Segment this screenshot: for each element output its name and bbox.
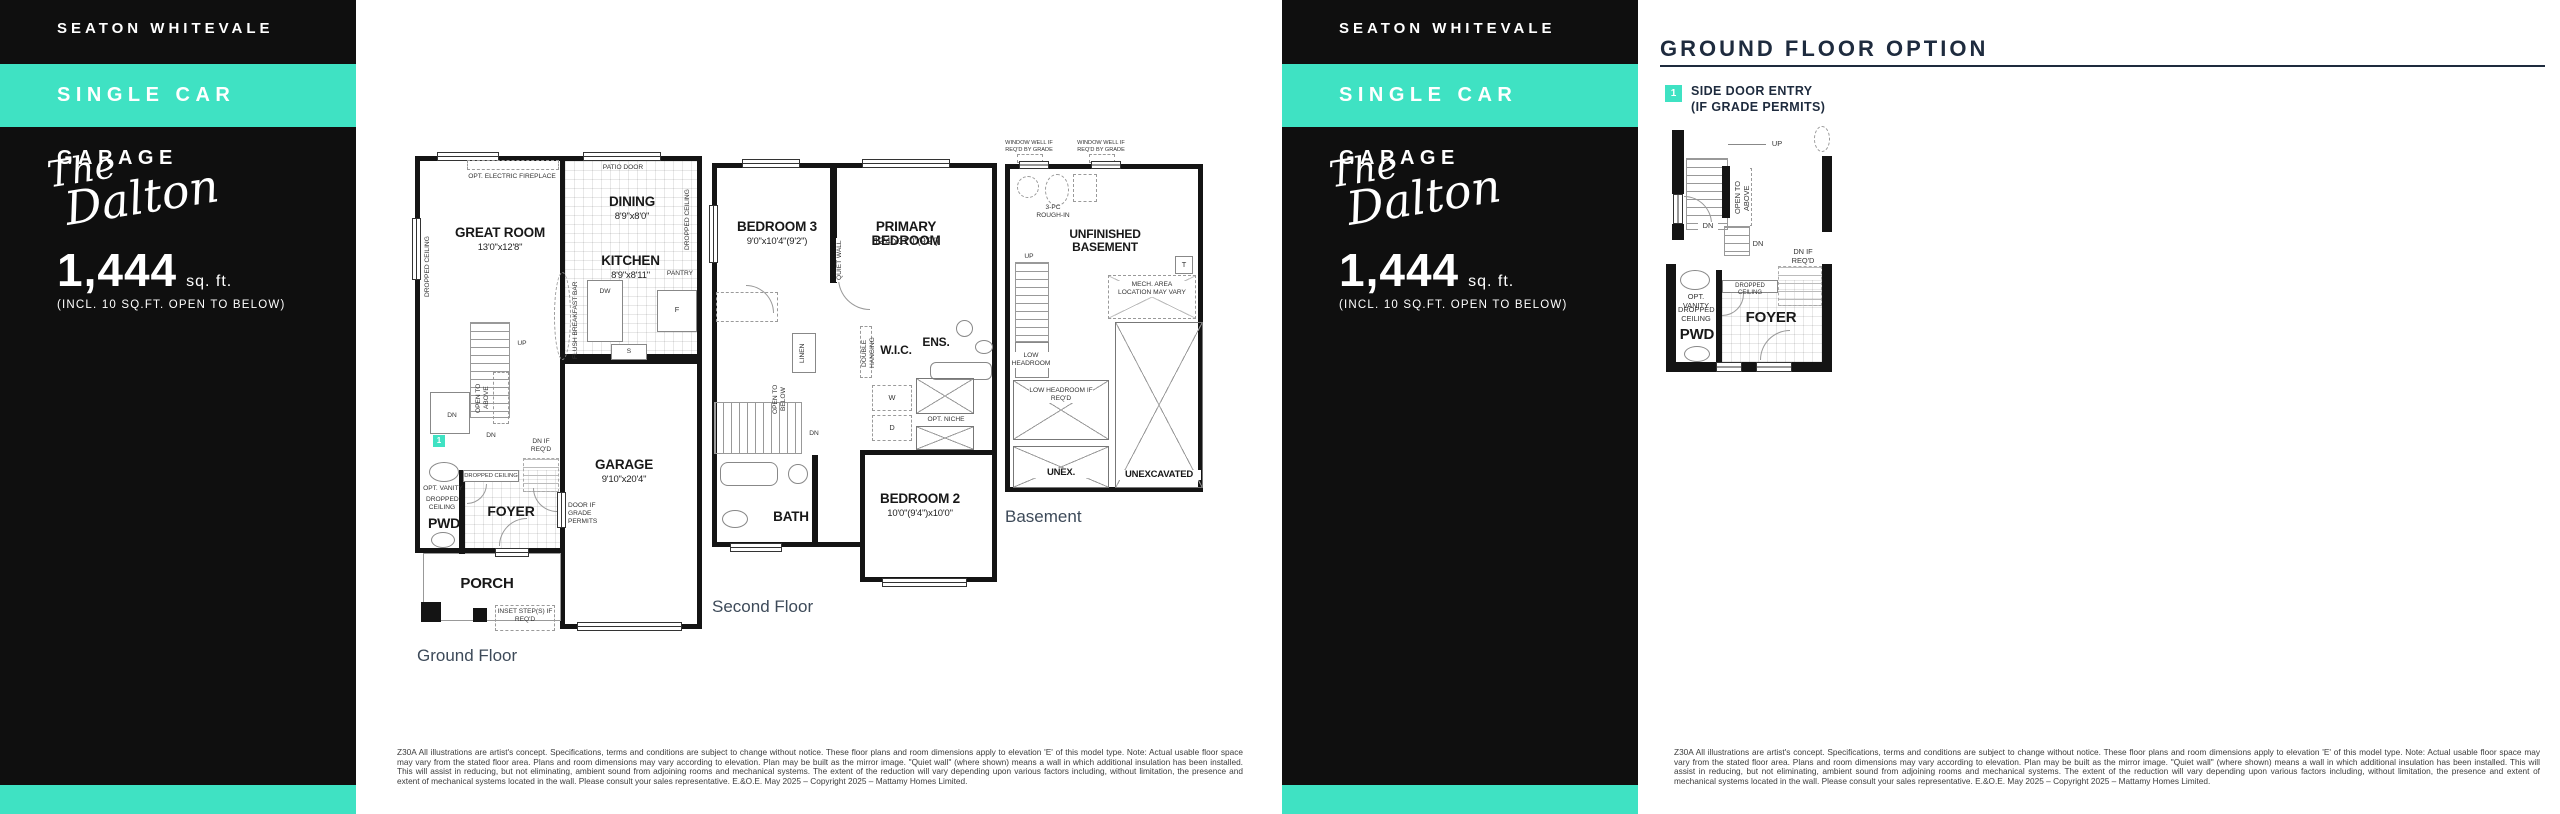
flush-breakfast-bar-label: FLUSH BREAKFAST BAR — [572, 280, 581, 360]
dn-label: DN — [1748, 240, 1768, 249]
wardrobe — [916, 378, 974, 414]
dryer-label: D — [872, 424, 912, 433]
tank-label: T — [1175, 261, 1193, 270]
wall-segment — [812, 455, 818, 547]
right-sidebar: SEATON WHITEVALE SINGLE CAR GARAGE The D… — [1282, 0, 1638, 814]
option-floor-plan: UP OPEN TO ABOVE DN DN DN IF REQ'D OPT. … — [1658, 130, 1840, 378]
door-if-grade-label: DOOR IF GRADE PERMITS — [568, 502, 602, 526]
room-label-ensuite: ENS. — [918, 336, 954, 349]
primary-bedroom-dim: 12'4"x11'0"(9'2") — [842, 236, 970, 247]
bedroom2-dim: 10'0"(9'4")x10'0" — [864, 508, 976, 519]
window — [882, 578, 967, 587]
great-room-dim: 13'0"x12'8" — [440, 242, 560, 253]
room-label-foyer: FOYER — [1742, 310, 1800, 326]
room-label-great-room: GREAT ROOM — [440, 226, 560, 240]
bedroom3-dim: 9'0"x10'4"(9'2") — [727, 236, 827, 247]
window — [730, 543, 782, 552]
stairs-up — [1015, 262, 1049, 342]
title-rule — [1660, 65, 2545, 67]
up-label: UP — [511, 340, 533, 348]
room-label-bedroom2: BEDROOM 2 — [870, 492, 970, 506]
side-door-opening — [1673, 194, 1683, 224]
square-footage: 1,444 sq. ft. — [1339, 243, 1514, 297]
window — [709, 205, 718, 263]
basement-plan: WINDOW WELL IF REQ'D BY GRADE WINDOW WEL… — [1005, 140, 1215, 535]
square-footage: 1,444 sq. ft. — [57, 243, 232, 297]
opt-niche-label: OPT. NICHE — [924, 416, 968, 424]
window — [412, 218, 421, 280]
wall-segment — [1822, 156, 1832, 232]
vanity-sink — [1680, 270, 1710, 290]
garage-type-banner: SINGLE CAR GARAGE — [0, 64, 356, 127]
sqft-value: 1,444 — [57, 243, 177, 297]
bedroom2-closet — [916, 426, 974, 450]
window — [742, 159, 800, 168]
toilet — [431, 532, 455, 548]
room-label-bath: BATH — [768, 510, 814, 524]
ensuite-sink — [956, 320, 973, 337]
bath-toilet — [722, 510, 748, 528]
window — [1091, 161, 1121, 169]
fireplace-dashed-box — [467, 160, 559, 170]
stair-wall — [1722, 166, 1730, 218]
main-plan-sheet: SEATON WHITEVALE SINGLE CAR GARAGE The D… — [0, 0, 1282, 814]
room-label-dining: DINING — [587, 195, 677, 209]
mech-area-label: MECH. AREA LOCATION MAY VARY — [1118, 281, 1186, 297]
optional-stairs — [523, 458, 559, 492]
inset-steps-label: INSET STEP(S) IF REQ'D — [497, 608, 553, 624]
legend-marker-1: 1 — [1665, 85, 1682, 102]
sqft-unit: sq. ft. — [186, 273, 232, 291]
window — [862, 159, 950, 168]
unexcavated-label: UNEXCAVATED — [1117, 470, 1201, 480]
garage-dim: 9'10"x20'4" — [590, 474, 658, 485]
disclaimer-text: Z30A All illustrations are artist's conc… — [397, 748, 1243, 787]
ground-floor-caption: Ground Floor — [417, 646, 517, 666]
dn-label: DN — [1698, 222, 1718, 231]
dropped-ceiling-label: DROPPED CEILING — [464, 473, 518, 480]
option-sheet: SEATON WHITEVALE SINGLE CAR GARAGE The D… — [1282, 0, 2560, 814]
patio-door-window — [583, 152, 661, 161]
sink-label: S — [619, 348, 639, 356]
wall-segment — [1822, 264, 1832, 372]
sqft-note: (INCL. 10 SQ.FT. OPEN TO BELOW) — [57, 299, 285, 311]
room-label-pwd: PWD — [1674, 327, 1720, 343]
up-arrow-line — [1728, 144, 1766, 145]
linen-label: LINEN — [799, 338, 808, 368]
up-label: UP — [1021, 253, 1037, 261]
dn-label: DN — [481, 432, 501, 440]
unexcavated-area — [1115, 322, 1203, 488]
open-to-above-zone — [493, 372, 509, 424]
open-to-below-label: OPEN TO BELOW — [772, 378, 790, 420]
window-well-label: WINDOW WELL IF REQ'D BY GRADE — [1005, 140, 1053, 153]
vanity-sink — [429, 462, 459, 482]
disclaimer-text: Z30A All illustrations are artist's conc… — [1674, 748, 2540, 787]
dn-label: DN — [804, 430, 824, 438]
rough-in-label: 3-PC ROUGH-IN — [1033, 204, 1073, 220]
opt-fireplace-label: OPT. ELECTRIC FIREPLACE — [447, 173, 577, 181]
front-door-opening — [1756, 362, 1792, 372]
sqft-unit: sq. ft. — [1468, 273, 1514, 291]
window — [1716, 362, 1742, 372]
legend-if-grade-permits: (IF GRADE PERMITS) — [1691, 100, 1825, 114]
up-label: UP — [1766, 140, 1788, 149]
rough-in-fixture — [1073, 174, 1097, 202]
dropped-ceiling-label: DROPPED CEILING — [1723, 283, 1777, 297]
window — [1019, 161, 1049, 169]
grade-door-opening — [557, 492, 566, 528]
porch-post — [421, 602, 441, 622]
opt-vanity-label: OPT. VANITY — [423, 485, 463, 493]
breakfast-bar-curve — [554, 272, 571, 360]
toilet — [1684, 346, 1710, 362]
left-sidebar: SEATON WHITEVALE SINGLE CAR GARAGE The D… — [0, 0, 356, 814]
optional-stairs — [1778, 266, 1822, 306]
breakfast-bar-curve — [1814, 126, 1830, 152]
option-marker-1: 1 — [433, 435, 445, 447]
fridge-label: F — [670, 306, 684, 315]
bath-sink — [788, 464, 808, 484]
stairs-lower — [1724, 226, 1750, 256]
pantry-label: PANTRY — [661, 270, 699, 278]
low-headroom-label: LOW HEADROOM — [1011, 352, 1051, 368]
sqft-note: (INCL. 10 SQ.FT. OPEN TO BELOW) — [1339, 299, 1567, 311]
window-well-label: WINDOW WELL IF REQ'D BY GRADE — [1077, 140, 1125, 153]
room-label-foyer: FOYER — [485, 504, 537, 519]
dishwasher-label: DW — [593, 288, 617, 296]
sidebar-accent-strip — [0, 785, 356, 814]
dining-dim: 8'9"x8'0" — [587, 211, 677, 222]
room-label-kitchen: KITCHEN — [583, 254, 678, 268]
wall-segment — [1672, 130, 1684, 194]
patio-door-label: PATIO DOOR — [595, 164, 651, 172]
room-label-garage: GARAGE — [590, 458, 658, 472]
garage-type-banner: SINGLE CAR GARAGE — [1282, 64, 1638, 127]
rough-in-fixture — [1017, 176, 1039, 198]
dropped-ceiling-label: DROPPED CEILING — [426, 496, 458, 512]
ground-floor-plan: OPT. ELECTRIC FIREPLACE PATIO DOOR GREAT… — [415, 140, 707, 670]
second-floor-plan: QUIET WALL BEDROOM 3 9'0"x10'4"(9'2") PR… — [712, 150, 1000, 625]
wall-outline — [560, 359, 702, 629]
basement-caption: Basement — [1005, 507, 1082, 527]
washer-label: W — [872, 394, 912, 403]
bath-tub — [720, 462, 778, 486]
option-title: GROUND FLOOR OPTION — [1660, 36, 1988, 62]
low-headroom-if-label: LOW HEADROOM IF REQ'D — [1029, 387, 1093, 403]
sidebar-accent-strip — [1282, 785, 1638, 814]
dropped-ceiling-label: DROPPED CEILING — [684, 180, 693, 260]
wall-segment — [459, 470, 465, 554]
second-floor-caption: Second Floor — [712, 597, 813, 617]
dropped-ceiling-label: DROPPED CEILING — [1678, 306, 1714, 324]
dn-if-reqd-label: DN IF REQ'D — [1786, 248, 1820, 266]
porch-post — [473, 608, 487, 622]
unex-label: UNEX. — [1033, 468, 1089, 478]
dn-if-reqd-label: DN IF REQ'D — [527, 438, 555, 454]
sqft-value: 1,444 — [1339, 243, 1459, 297]
open-to-above-label: OPEN TO ABOVE — [475, 374, 491, 422]
open-to-above-label: OPEN TO ABOVE — [1734, 178, 1750, 218]
dn-label: DN — [443, 412, 461, 420]
legend-side-door-entry: SIDE DOOR ENTRY — [1691, 84, 1813, 98]
community-name: SEATON WHITEVALE — [1339, 20, 1556, 37]
community-name: SEATON WHITEVALE — [57, 20, 274, 37]
room-label-pwd: PWD — [423, 516, 465, 531]
front-door-opening — [495, 548, 529, 557]
wall-segment — [1672, 224, 1684, 240]
room-label-wic: W.I.C. — [874, 344, 918, 357]
room-label-porch: PORCH — [457, 576, 517, 592]
dropped-ceiling-label: DROPPED CEILING — [424, 232, 433, 302]
double-hanging-label: DOUBLE HANGING — [861, 330, 870, 376]
wall-segment — [1666, 264, 1676, 364]
room-label-bedroom3: BEDROOM 3 — [727, 220, 827, 234]
ensuite-toilet — [975, 340, 993, 354]
rough-in-fixture — [1045, 174, 1069, 206]
room-label-unfinished-basement: UNFINISHED BASEMENT — [1063, 228, 1147, 253]
wall-segment — [1666, 362, 1832, 372]
garage-door — [577, 622, 682, 631]
